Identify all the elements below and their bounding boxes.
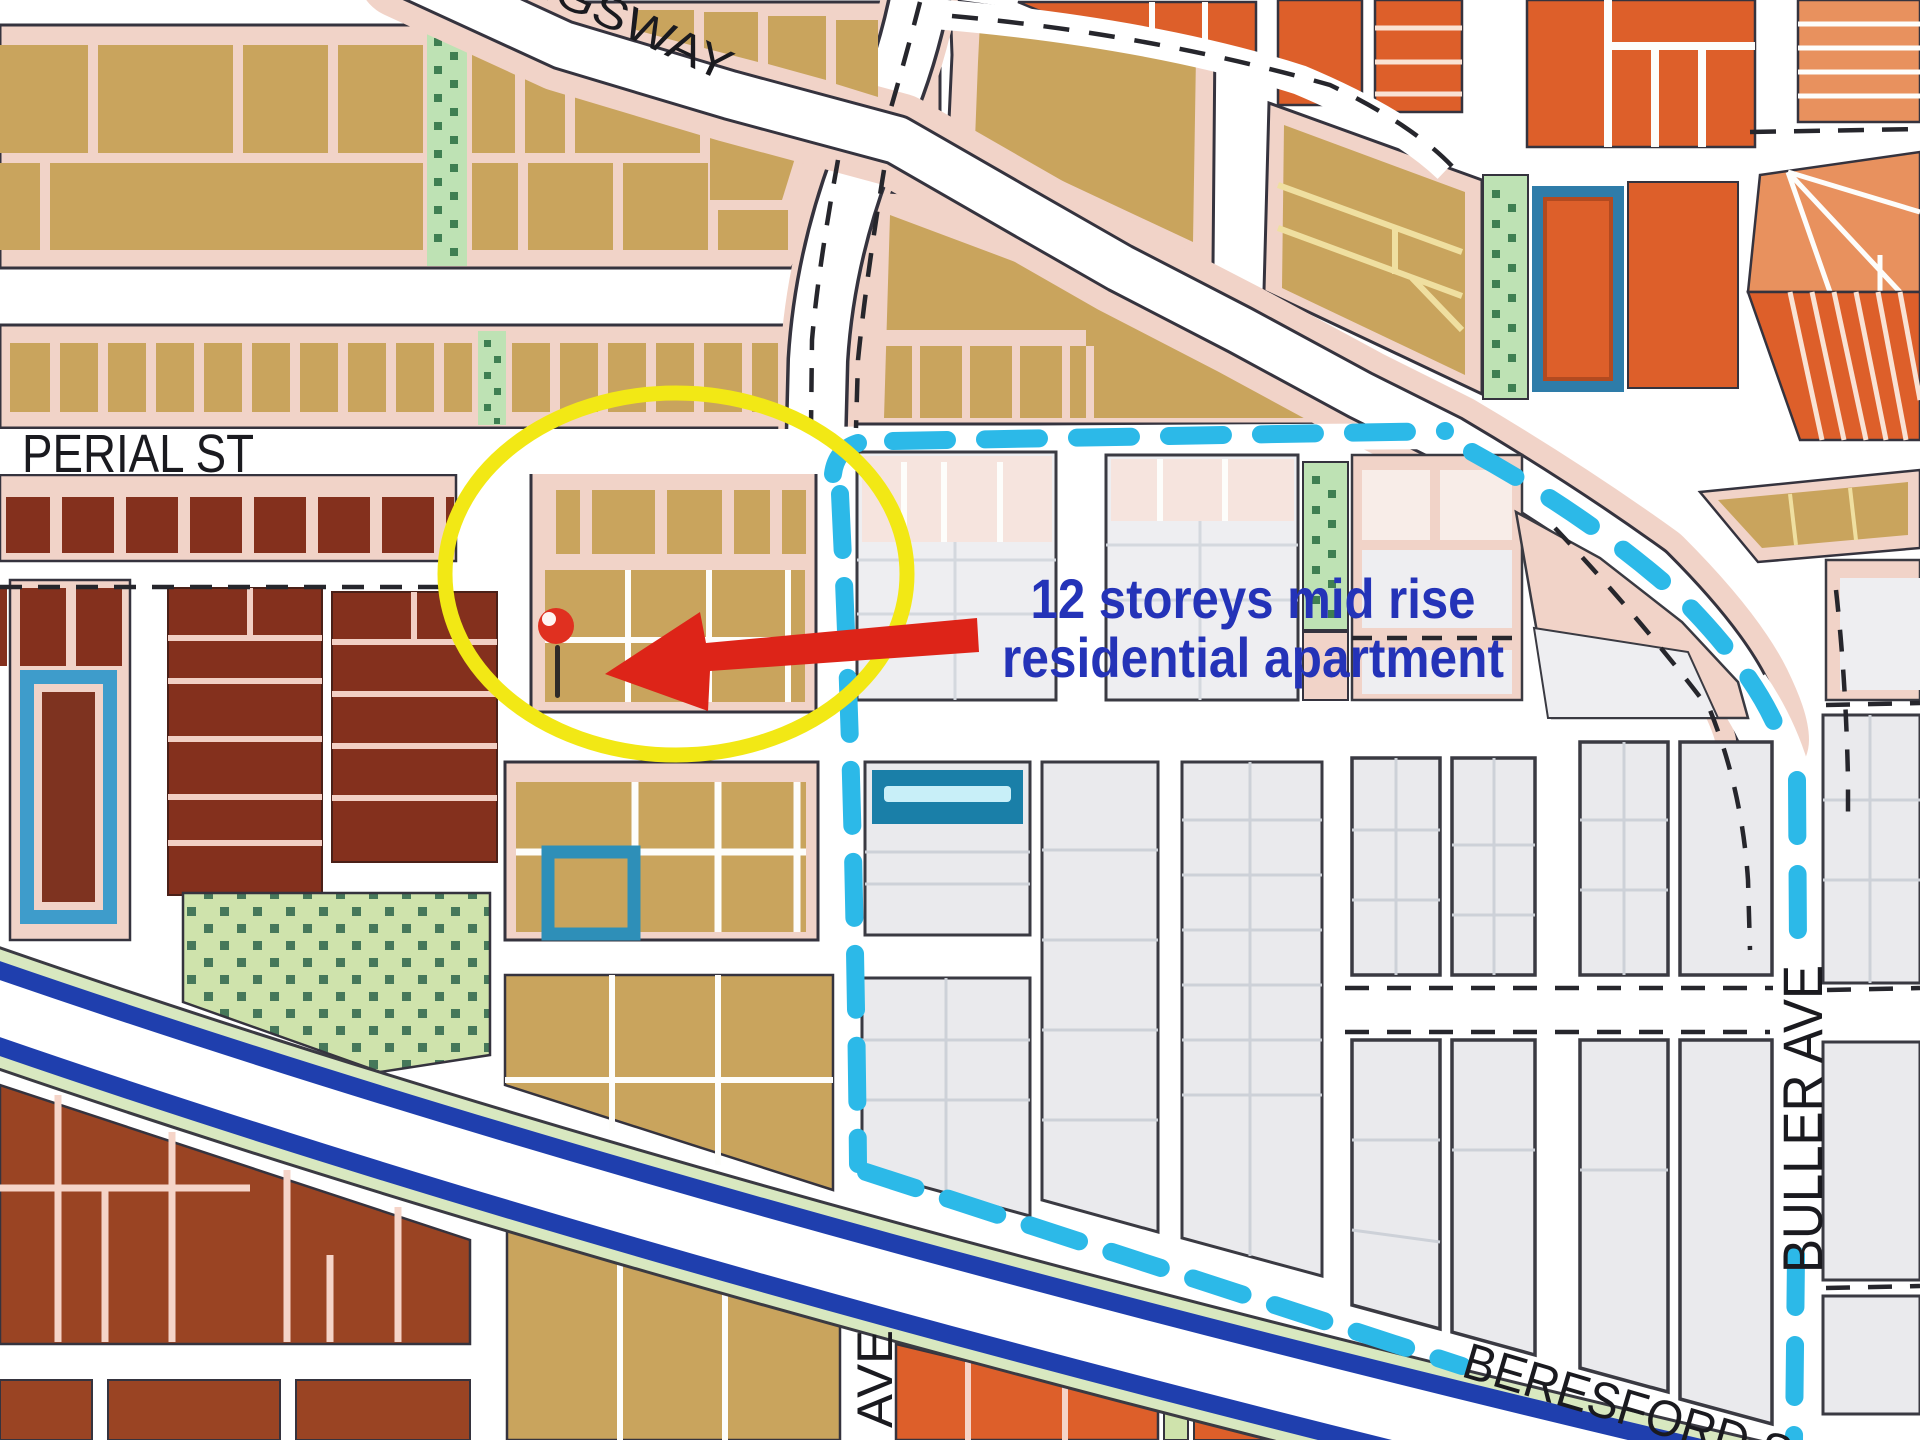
svg-text:residential apartment: residential apartment	[1002, 626, 1504, 689]
svg-text:AVE: AVE	[847, 1330, 903, 1428]
svg-text:PERIAL ST: PERIAL ST	[22, 424, 254, 484]
svg-text:12 storeys mid rise: 12 storeys mid rise	[1031, 567, 1476, 630]
svg-text:BULLER AVE: BULLER AVE	[1771, 965, 1834, 1273]
